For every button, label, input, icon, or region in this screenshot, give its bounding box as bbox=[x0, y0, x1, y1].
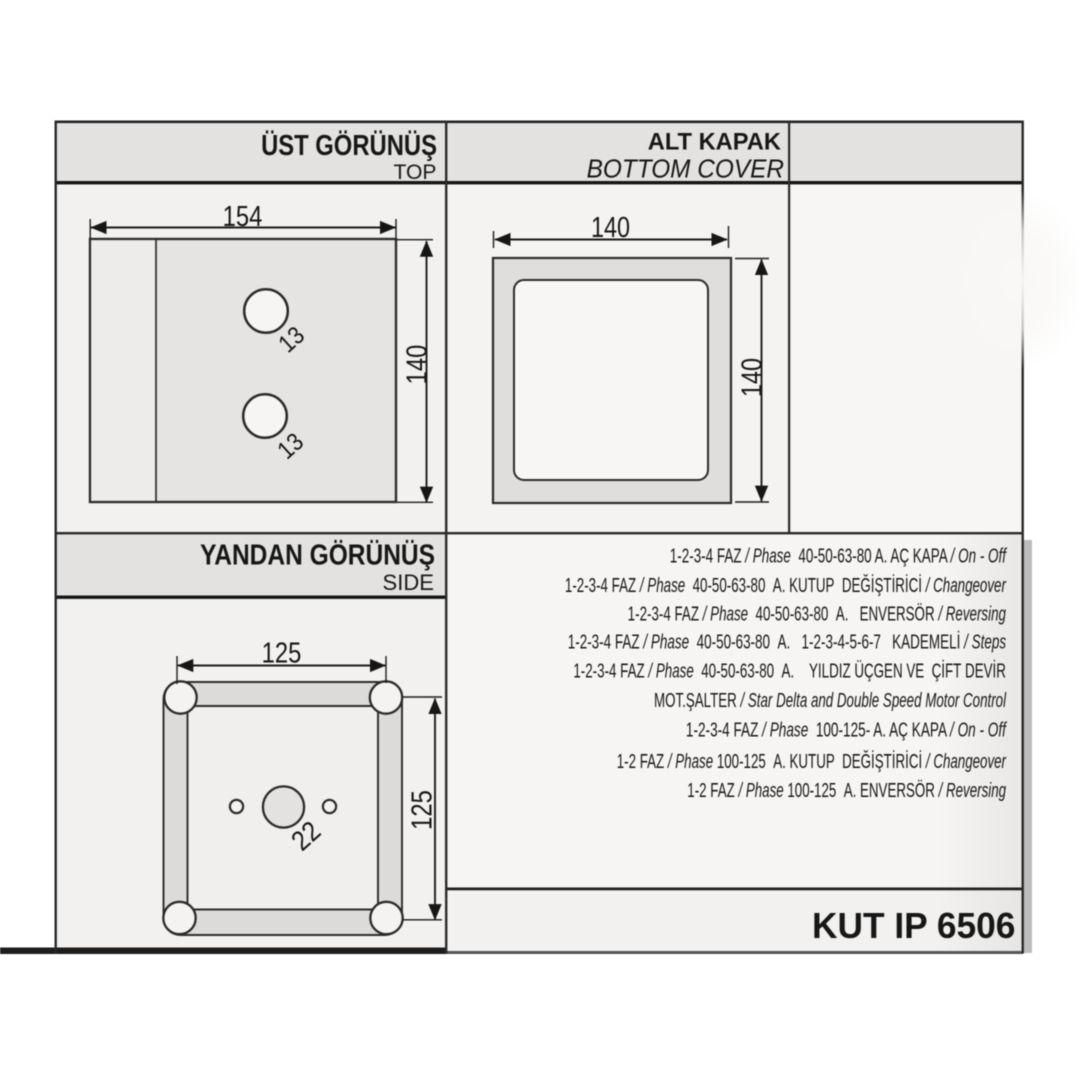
svg-text:ÜST GÖRÜNÜŞ: ÜST GÖRÜNÜŞ bbox=[261, 129, 437, 162]
svg-text:140: 140 bbox=[735, 358, 768, 397]
svg-text:TOP: TOP bbox=[394, 160, 437, 184]
svg-text:1-2-3-4 FAZ / Phase 40-50-63-: 1-2-3-4 FAZ / Phase 40-50-63-80 A. ENVER… bbox=[628, 602, 1007, 626]
svg-text:1-2-3-4 FAZ / Phase 40-50-63-: 1-2-3-4 FAZ / Phase 40-50-63-80 A. 1-2-3… bbox=[568, 630, 1007, 654]
svg-text:BOTTOM COVER: BOTTOM COVER bbox=[587, 155, 784, 184]
svg-text:1-2 FAZ / Phase 100-125 A. EN: 1-2 FAZ / Phase 100-125 A. ENVERSÖR / Re… bbox=[687, 778, 1006, 802]
svg-text:ALT KAPAK: ALT KAPAK bbox=[648, 128, 781, 155]
svg-text:1-2-3-4 FAZ / Phase 40-50-63-: 1-2-3-4 FAZ / Phase 40-50-63-80 A. KUTUP… bbox=[565, 573, 1007, 597]
svg-text:1-2 FAZ / Phase 100-125 A. KU: 1-2 FAZ / Phase 100-125 A. KUTUP DEĞİŞTİ… bbox=[617, 749, 1007, 773]
svg-text:1-2-3-4 FAZ / Phase 40-50-63-: 1-2-3-4 FAZ / Phase 40-50-63-80 A. AÇ KA… bbox=[670, 544, 1008, 568]
svg-text:YANDAN GÖRÜNÜŞ: YANDAN GÖRÜNÜŞ bbox=[200, 539, 435, 571]
svg-text:125: 125 bbox=[405, 790, 438, 830]
svg-text:KUT IP 6506: KUT IP 6506 bbox=[812, 904, 1015, 946]
svg-text:125: 125 bbox=[262, 636, 302, 669]
svg-text:1-2-3-4 FAZ / Phase 40-50-63-: 1-2-3-4 FAZ / Phase 40-50-63-80 A. YILDI… bbox=[573, 659, 1006, 683]
svg-text:MOT.ŞALTER / Star Delta and Do: MOT.ŞALTER / Star Delta and Double Speed… bbox=[654, 688, 1007, 712]
svg-text:SIDE: SIDE bbox=[383, 570, 434, 595]
svg-text:1-2-3-4 FAZ / Phase 100-125-: 1-2-3-4 FAZ / Phase 100-125- A. AÇ KAPA … bbox=[686, 718, 1008, 742]
svg-text:140: 140 bbox=[400, 345, 433, 385]
